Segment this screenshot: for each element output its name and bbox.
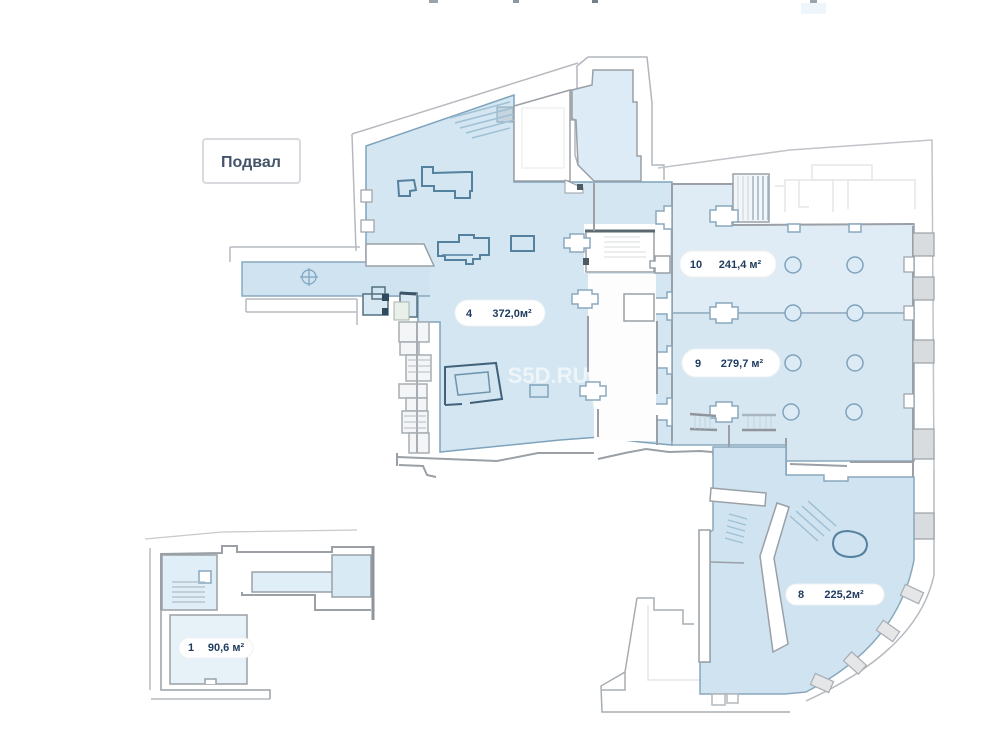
- svg-text:225,2м²: 225,2м²: [824, 589, 864, 601]
- svg-text:4: 4: [466, 308, 473, 320]
- svg-text:1: 1: [188, 642, 194, 654]
- svg-text:9: 9: [695, 358, 701, 370]
- svg-text:8: 8: [798, 589, 804, 601]
- svg-text:279,7 м²: 279,7 м²: [721, 358, 764, 370]
- svg-text:10: 10: [690, 259, 702, 271]
- svg-text:90,6 м²: 90,6 м²: [208, 642, 245, 654]
- svg-text:Подвал: Подвал: [221, 154, 281, 171]
- svg-text:372,0м²: 372,0м²: [492, 308, 532, 320]
- svg-text:S5D.RU: S5D.RU: [508, 363, 589, 388]
- svg-text:241,4 м²: 241,4 м²: [719, 259, 762, 271]
